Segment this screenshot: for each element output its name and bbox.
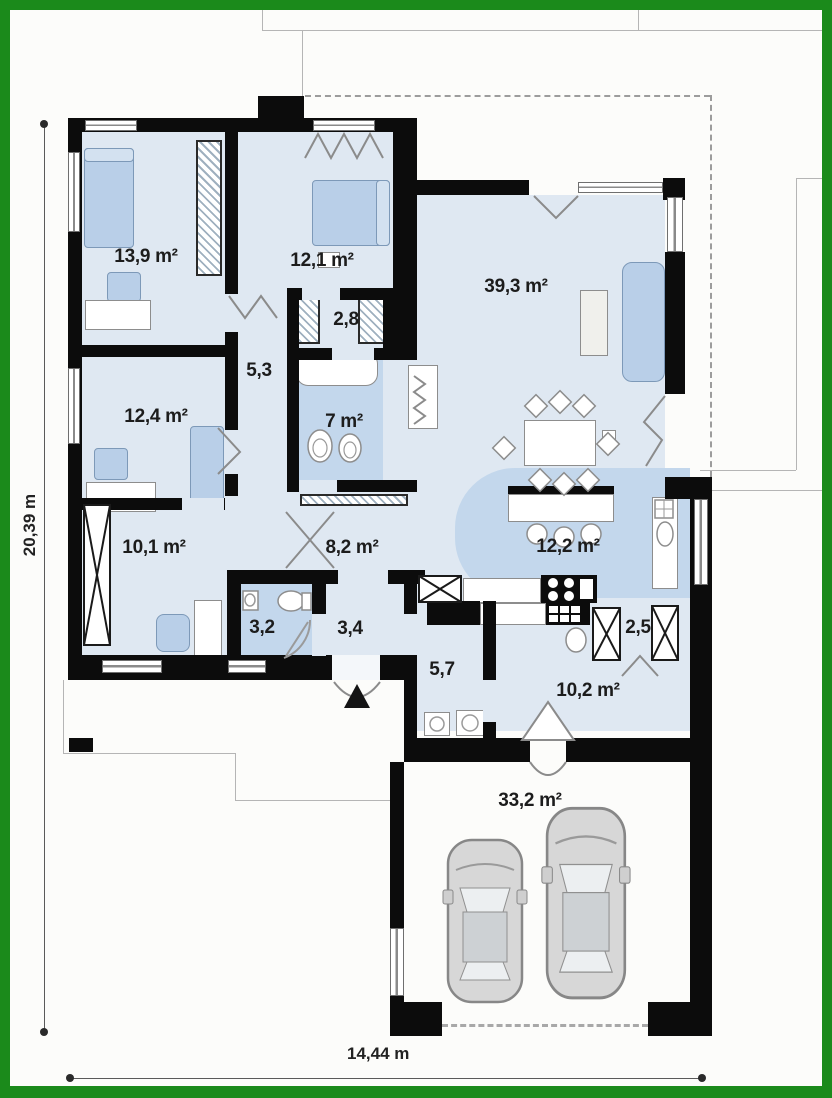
room-label-bedroom-4: 10,1 m² xyxy=(122,537,185,559)
cooktop xyxy=(541,575,597,603)
window xyxy=(102,660,162,673)
floor-plan-image: 13,9 m² 12,1 m² 2,8 5,3 12,4 m² 7 m² 39,… xyxy=(0,0,832,1098)
office-chair xyxy=(107,272,141,302)
room-label-garage-hall: 10,2 m² xyxy=(556,680,619,702)
washing-machine xyxy=(456,710,484,736)
room-label-kitchen: 12,2 m² xyxy=(536,536,599,558)
room-label-pantry: 2,5 xyxy=(625,617,651,639)
window xyxy=(85,120,137,131)
room-label-living-room: 39,3 m² xyxy=(484,276,547,298)
kitchen-counter xyxy=(463,578,541,603)
shelf-unit xyxy=(194,600,222,658)
closet-hatched xyxy=(358,296,386,344)
fireplace xyxy=(408,365,438,429)
porch-pillar xyxy=(69,738,93,752)
room-label-hall-main: 8,2 m² xyxy=(325,537,378,559)
room-label-bedroom-1: 13,9 m² xyxy=(114,246,177,268)
room-label-entry: 3,4 xyxy=(337,618,363,640)
dimension-label-width: 14,44 m xyxy=(347,1044,409,1064)
window xyxy=(667,197,683,252)
bed xyxy=(84,148,134,248)
washing-machine xyxy=(424,712,450,736)
shelf-hatched xyxy=(300,494,408,506)
window xyxy=(578,182,663,193)
side-table xyxy=(602,430,616,444)
dimension-label-height: 20,39 m xyxy=(20,480,40,570)
room-label-bedroom-2: 12,1 m² xyxy=(290,250,353,272)
room-label-bathroom: 7 m² xyxy=(325,411,363,433)
oven-unit xyxy=(546,603,590,625)
front-door-opening xyxy=(332,655,380,680)
desk xyxy=(85,300,151,330)
armchair xyxy=(156,614,190,652)
window xyxy=(228,660,266,673)
wardrobe-hatched xyxy=(196,140,222,276)
sofa xyxy=(622,262,665,382)
dining-table xyxy=(524,420,596,466)
window xyxy=(390,928,404,996)
room-label-wc: 3,2 xyxy=(249,617,275,639)
office-chair xyxy=(94,448,128,480)
room-label-hall-night: 5,3 xyxy=(246,360,272,382)
bed-pillow xyxy=(376,180,390,246)
window xyxy=(68,152,80,232)
kitchen-island-top xyxy=(508,486,614,494)
coffee-table xyxy=(580,290,608,356)
room-label-utility: 5,7 xyxy=(429,659,455,681)
room-label-bedroom-3: 12,4 m² xyxy=(124,406,187,428)
bed-pillow xyxy=(84,148,134,162)
window xyxy=(68,368,80,444)
kitchen-counter xyxy=(652,497,678,589)
window xyxy=(694,499,708,585)
room-label-wardrobe: 2,8 xyxy=(333,309,359,331)
window xyxy=(313,120,375,131)
room-label-garage: 33,2 m² xyxy=(498,790,561,812)
kitchen-island xyxy=(508,494,614,522)
